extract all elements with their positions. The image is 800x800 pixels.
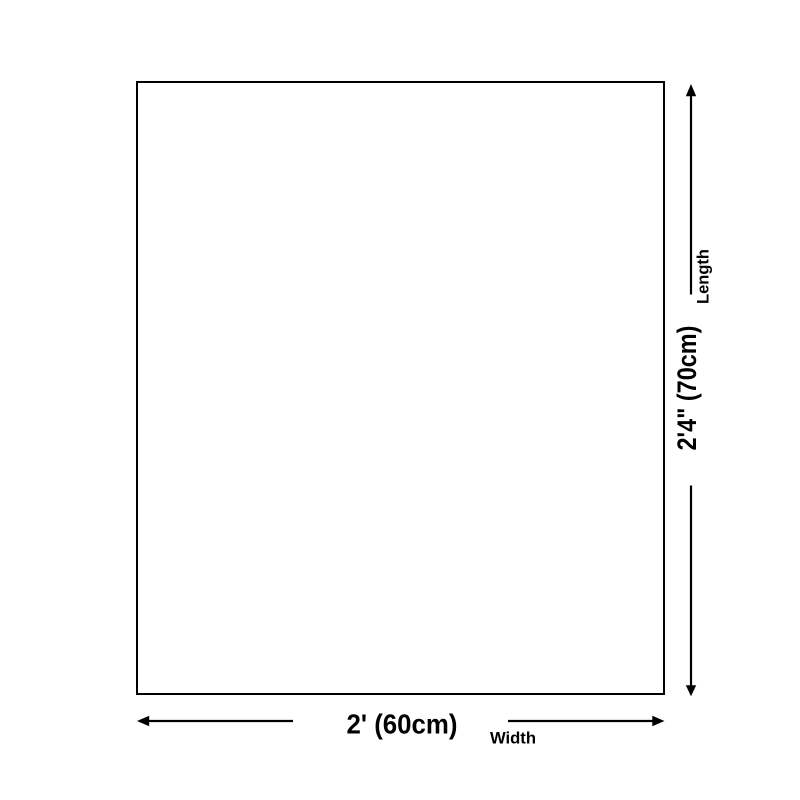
svg-text:2' (60cm): 2' (60cm): [347, 709, 458, 740]
svg-text:2'4" (70cm): 2'4" (70cm): [672, 326, 702, 451]
svg-text:Width: Width: [490, 729, 536, 748]
svg-text:Length: Length: [694, 249, 713, 304]
